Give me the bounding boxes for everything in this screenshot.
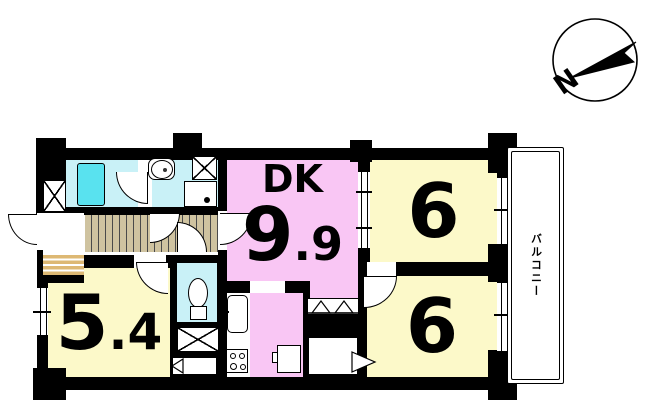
door-arc-entrance: [8, 214, 37, 245]
wall-dk-left-upper: [218, 160, 227, 211]
window-left-tick: [33, 311, 51, 313]
folding-door-icon-left: [170, 358, 184, 374]
storage-x-washroom: [192, 156, 217, 180]
bedroom-top-right-area: 6: [407, 174, 459, 249]
storage-x-toilet: [177, 327, 219, 352]
sliding-door-dk-bedroom: [361, 172, 368, 248]
wall-kitchen-top-a: [227, 281, 250, 293]
bedroom-left-area: 5.4: [56, 285, 163, 361]
stove-icon: [226, 349, 248, 373]
toilet-icon: [188, 278, 208, 308]
dk-label-group: DK 9.9: [227, 158, 358, 274]
sliding-door-tick-b: [356, 227, 372, 229]
wall-bedroom-left-top-a: [84, 255, 134, 268]
bathtub: [77, 163, 105, 206]
pillar-bottom-left: [33, 368, 66, 400]
bedroom-top-right-room: 6: [370, 160, 497, 262]
folding-door-icon-right: [350, 350, 378, 374]
bedroom-bottom-right-area: 6: [406, 289, 458, 364]
washing-machine-icon: [184, 181, 217, 207]
closet-door-triangles-icon: [308, 299, 358, 314]
refrigerator: [277, 345, 301, 373]
meter-box-x: [43, 180, 66, 212]
compass: N: [550, 16, 642, 106]
toilet-tank: [190, 306, 207, 320]
entry-step-mat: [43, 255, 84, 275]
refrigerator-handle: [272, 352, 278, 363]
wall-entry-step: [43, 275, 84, 283]
kitchen-sink: [227, 295, 248, 333]
wall-bottom: [37, 377, 517, 390]
wall-bedrooms-divider: [396, 262, 497, 276]
closet-futon: [308, 298, 358, 314]
kitchen-floor-east: [310, 281, 358, 298]
balcony: バルコニー: [507, 147, 564, 384]
faucet-icon: [219, 311, 229, 313]
washbasin-icon: [148, 158, 175, 180]
wall-dk-bedroom-divider-upper: [358, 160, 370, 172]
balcony-inner-rail: [511, 151, 560, 380]
dk-area: 9.9: [242, 198, 343, 272]
wall-dk-bedroom-divider-lower: [358, 248, 370, 262]
floor-plan: 6 6 5.4: [0, 0, 648, 402]
sliding-door-tick-a: [356, 191, 372, 193]
kitchen-counter-pass: [250, 281, 285, 293]
